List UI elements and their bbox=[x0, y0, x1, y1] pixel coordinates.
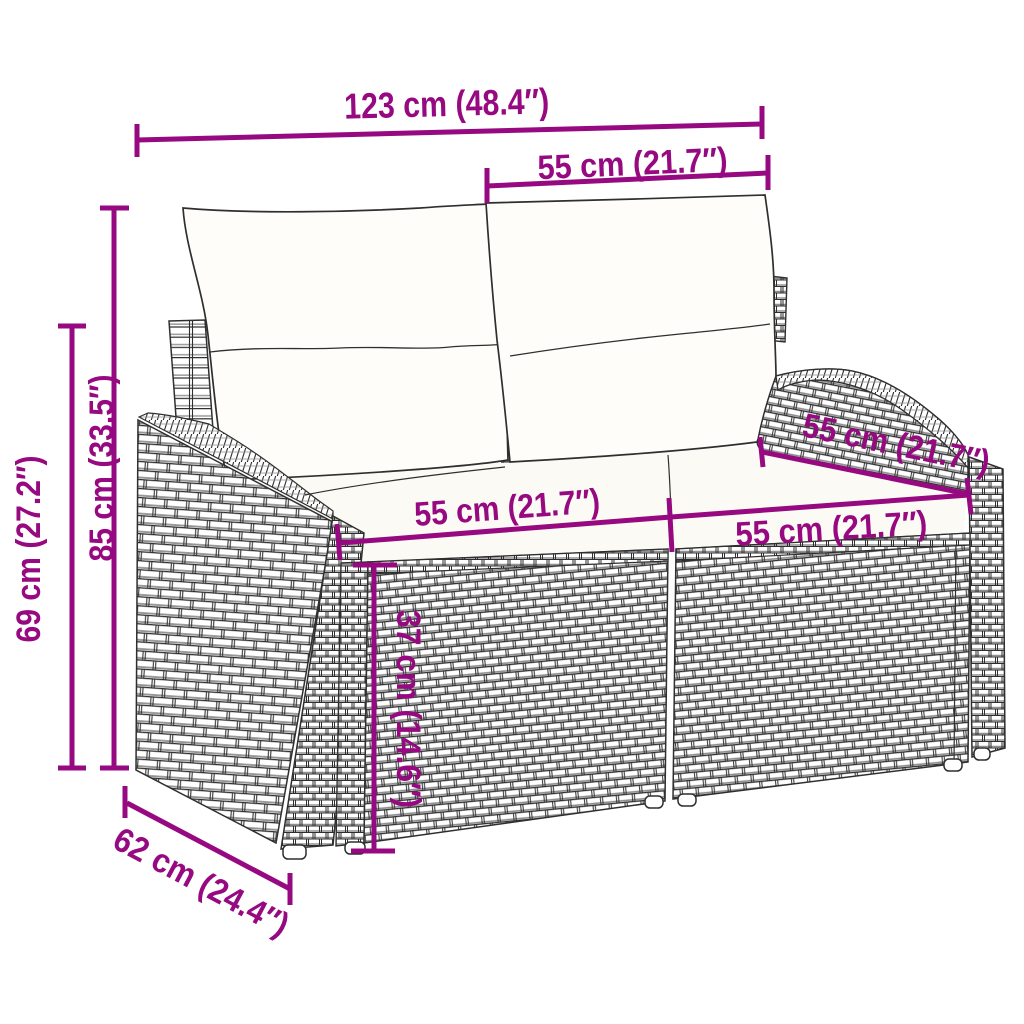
svg-text:85 cm (33.5″): 85 cm (33.5″) bbox=[83, 375, 121, 562]
svg-text:69 cm (27.2″): 69 cm (27.2″) bbox=[10, 456, 48, 643]
svg-text:123 cm (48.4″): 123 cm (48.4″) bbox=[344, 80, 550, 126]
svg-text:37 cm (14.6″): 37 cm (14.6″) bbox=[389, 610, 427, 808]
